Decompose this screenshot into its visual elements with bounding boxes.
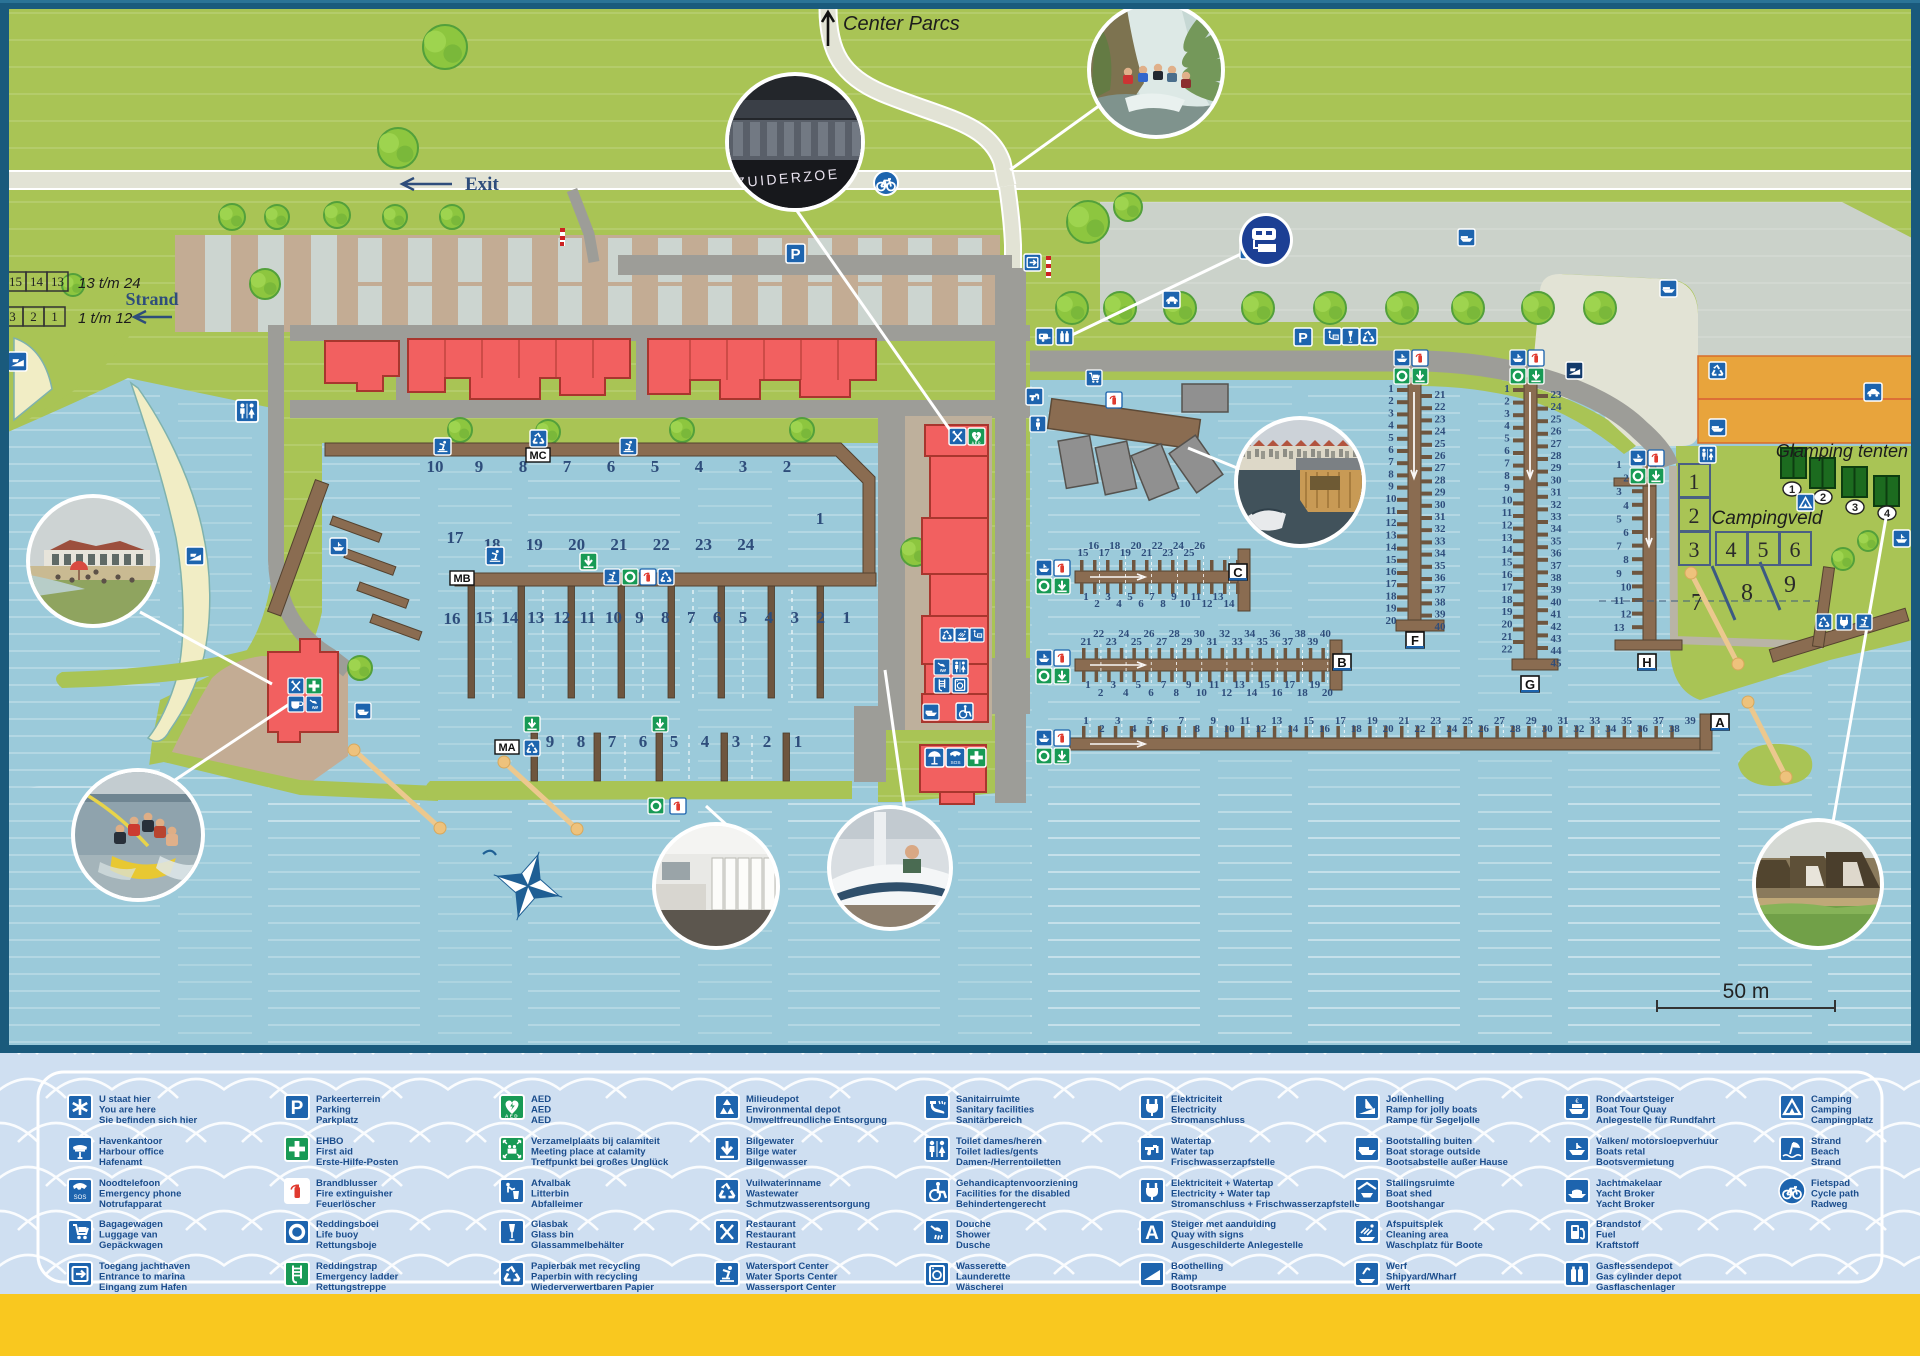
svg-text:27: 27 [1494,715,1506,727]
svg-text:Exit: Exit [465,174,499,195]
svg-text:1: 1 [1689,469,1700,494]
svg-text:26: 26 [1435,450,1447,462]
svg-text:Abfalleimer: Abfalleimer [531,1199,583,1210]
svg-text:Kraftstoff: Kraftstoff [1596,1240,1640,1251]
svg-text:9: 9 [1186,679,1192,691]
svg-text:22: 22 [1093,628,1105,640]
svg-text:11: 11 [1240,715,1250,727]
svg-text:B: B [1337,655,1346,670]
svg-text:9: 9 [546,732,555,751]
svg-text:U staat hier: U staat hier [99,1094,151,1105]
svg-text:Gepäckwagen: Gepäckwagen [99,1240,163,1251]
svg-text:32: 32 [1435,523,1447,535]
svg-text:9: 9 [1784,572,1796,598]
svg-text:15: 15 [476,608,493,627]
svg-text:17: 17 [1386,578,1398,590]
svg-text:Facilities for the disabled: Facilities for the disabled [956,1189,1070,1200]
svg-text:Bilgenwasser: Bilgenwasser [746,1157,808,1168]
svg-text:36: 36 [1435,572,1447,584]
svg-text:1: 1 [1504,383,1510,395]
svg-text:Wäscherei: Wäscherei [956,1282,1004,1293]
svg-text:26: 26 [1194,540,1206,552]
svg-text:40: 40 [1435,621,1447,633]
svg-text:20: 20 [568,535,585,554]
svg-text:Environmental depot: Environmental depot [746,1105,841,1116]
svg-text:14: 14 [1502,544,1514,556]
svg-text:MC: MC [529,450,546,462]
svg-text:2: 2 [30,309,37,324]
svg-text:Treffpunkt bei großes Unglück: Treffpunkt bei großes Unglück [531,1157,669,1168]
svg-text:21: 21 [1081,636,1092,648]
svg-text:Center Parcs: Center Parcs [843,13,960,35]
svg-text:Erste-Hilfe-Posten: Erste-Hilfe-Posten [316,1157,399,1168]
svg-text:34: 34 [1605,723,1617,735]
svg-text:AED: AED [531,1105,551,1116]
svg-text:Toilet ladies/gents: Toilet ladies/gents [956,1147,1038,1158]
svg-text:Notrufapparat: Notrufapparat [99,1199,163,1210]
svg-text:19: 19 [526,535,543,554]
svg-text:41: 41 [1551,609,1562,621]
svg-text:10: 10 [1621,581,1633,593]
svg-text:Emergency phone: Emergency phone [99,1189,181,1200]
svg-text:3: 3 [791,608,800,627]
svg-text:4: 4 [1123,687,1129,699]
svg-text:Jachtmakelaar: Jachtmakelaar [1596,1178,1662,1189]
svg-text:9: 9 [1388,481,1394,493]
svg-text:Cycle path: Cycle path [1811,1189,1859,1200]
svg-text:15: 15 [9,274,22,289]
svg-text:1: 1 [1085,679,1091,691]
svg-text:25: 25 [1551,413,1563,425]
svg-text:Restaurant: Restaurant [746,1219,796,1230]
svg-text:2: 2 [816,608,825,627]
svg-text:Glassammelbehälter: Glassammelbehälter [531,1240,624,1251]
svg-text:21: 21 [1141,547,1152,559]
svg-text:Rampe für Segeljolle: Rampe für Segeljolle [1386,1115,1480,1126]
svg-text:2: 2 [1098,687,1104,699]
svg-text:1: 1 [1083,715,1089,727]
svg-text:Papierbak met recycling: Papierbak met recycling [531,1261,640,1272]
svg-text:19: 19 [1502,606,1514,618]
svg-text:Toilet dames/heren: Toilet dames/heren [956,1136,1042,1147]
svg-text:6: 6 [1388,444,1394,456]
svg-text:4: 4 [695,457,704,476]
svg-text:Douche: Douche [956,1219,991,1230]
svg-text:Quay with signs: Quay with signs [1171,1230,1244,1241]
svg-text:Entrance to marina: Entrance to marina [99,1272,186,1283]
svg-text:29: 29 [1181,636,1193,648]
svg-text:Steiger met aanduiding: Steiger met aanduiding [1171,1219,1276,1230]
svg-text:Reddingsboei: Reddingsboei [316,1219,379,1230]
svg-text:16: 16 [1386,566,1398,578]
svg-text:Umweltfreundliche Entsorgung: Umweltfreundliche Entsorgung [746,1115,887,1126]
svg-text:36: 36 [1270,628,1282,640]
svg-text:14: 14 [1287,723,1299,735]
svg-text:17: 17 [1284,679,1296,691]
svg-text:Ramp for jolly boats: Ramp for jolly boats [1386,1105,1477,1116]
svg-text:Fuel: Fuel [1596,1230,1616,1241]
svg-text:4: 4 [1504,420,1510,432]
svg-text:25: 25 [1131,636,1143,648]
svg-text:Bootshangar: Bootshangar [1386,1199,1445,1210]
svg-text:2: 2 [763,732,772,751]
svg-text:12: 12 [1255,723,1267,735]
svg-text:14: 14 [501,608,519,627]
svg-text:Frischwasserzapfstelle: Frischwasserzapfstelle [1171,1157,1275,1168]
svg-text:10: 10 [1180,598,1192,610]
svg-text:26: 26 [1478,723,1490,735]
svg-text:13: 13 [1502,532,1514,544]
svg-text:5: 5 [1616,513,1622,525]
svg-text:18: 18 [1297,687,1309,699]
svg-text:32: 32 [1551,499,1563,511]
svg-text:27: 27 [1156,636,1168,648]
svg-text:Afvalbak: Afvalbak [531,1178,571,1189]
svg-text:11: 11 [1209,679,1219,691]
svg-text:37: 37 [1282,636,1294,648]
svg-text:31: 31 [1435,511,1446,523]
svg-text:8: 8 [661,608,670,627]
svg-text:40: 40 [1551,596,1563,608]
svg-text:Waschplatz für Boote: Waschplatz für Boote [1386,1240,1483,1251]
svg-text:First aid: First aid [316,1147,353,1158]
svg-text:Brandstof: Brandstof [1596,1219,1642,1230]
svg-text:7: 7 [1179,715,1185,727]
svg-text:17: 17 [1335,715,1347,727]
svg-text:12: 12 [1386,517,1398,529]
svg-text:Watertap: Watertap [1171,1136,1211,1147]
svg-text:4: 4 [1623,500,1629,512]
svg-text:Dusche: Dusche [956,1240,990,1251]
svg-text:Bilgewater: Bilgewater [746,1136,794,1147]
svg-text:33: 33 [1551,511,1563,523]
svg-text:MA: MA [498,742,515,754]
svg-text:7: 7 [1616,541,1622,553]
svg-text:3: 3 [1616,486,1622,498]
svg-text:8: 8 [1741,580,1753,606]
svg-text:38: 38 [1435,596,1447,608]
svg-text:19: 19 [1309,679,1321,691]
svg-text:Toegang jachthaven: Toegang jachthaven [99,1261,190,1272]
svg-text:Litterbin: Litterbin [531,1189,569,1200]
svg-text:Bagagewagen: Bagagewagen [99,1219,163,1230]
svg-text:13: 13 [1614,622,1626,634]
svg-text:Rettungstreppe: Rettungstreppe [316,1282,386,1293]
svg-text:Werft: Werft [1386,1282,1411,1293]
svg-text:45: 45 [1551,657,1563,669]
svg-text:6: 6 [1790,537,1801,562]
svg-text:3: 3 [1105,591,1111,603]
svg-text:9: 9 [475,457,484,476]
svg-text:Glass bin: Glass bin [531,1230,574,1241]
svg-text:17: 17 [1502,581,1514,593]
svg-text:33: 33 [1232,636,1244,648]
svg-text:17: 17 [447,528,465,547]
svg-text:Sanitary facilities: Sanitary facilities [956,1105,1034,1116]
svg-text:12: 12 [1221,687,1233,699]
svg-text:Electricity + Water tap: Electricity + Water tap [1171,1189,1270,1200]
svg-text:Fietspad: Fietspad [1811,1178,1850,1189]
svg-text:15: 15 [1303,715,1315,727]
svg-text:Boothelling: Boothelling [1171,1261,1223,1272]
svg-text:7: 7 [1504,457,1510,469]
svg-text:31: 31 [1207,636,1218,648]
svg-text:1: 1 [1789,484,1795,496]
svg-text:Parkplatz: Parkplatz [316,1115,358,1126]
svg-text:5: 5 [739,608,748,627]
svg-text:18: 18 [1351,723,1363,735]
svg-text:4: 4 [765,608,774,627]
svg-text:Shipyard/Wharf: Shipyard/Wharf [1386,1272,1457,1283]
svg-text:23: 23 [1435,413,1447,425]
svg-text:1: 1 [794,732,803,751]
svg-text:Valken/ motorsloepverhuur: Valken/ motorsloepverhuur [1596,1136,1719,1147]
svg-text:Boat Tour Quay: Boat Tour Quay [1596,1105,1667,1116]
svg-text:8: 8 [1173,687,1179,699]
svg-text:Schmutzwasserentsorgung: Schmutzwasserentsorgung [746,1199,870,1210]
svg-text:Wassersport Center: Wassersport Center [746,1282,836,1293]
svg-text:27: 27 [1551,438,1563,450]
svg-text:25: 25 [1435,438,1447,450]
svg-text:30: 30 [1542,723,1554,735]
svg-text:24: 24 [1118,628,1130,640]
svg-text:Restaurant: Restaurant [746,1240,796,1251]
svg-text:Boats retal: Boats retal [1596,1147,1645,1158]
svg-text:6: 6 [713,608,722,627]
svg-text:1: 1 [816,509,825,528]
svg-text:12: 12 [1621,609,1633,621]
svg-text:2: 2 [1388,395,1394,407]
svg-text:24: 24 [1551,401,1563,413]
svg-text:36: 36 [1637,723,1649,735]
svg-text:32: 32 [1219,628,1231,640]
svg-text:23: 23 [695,535,712,554]
svg-text:Vuilwaterinname: Vuilwaterinname [746,1178,821,1189]
svg-text:16: 16 [1272,687,1284,699]
svg-text:31: 31 [1558,715,1569,727]
svg-text:20: 20 [1383,723,1395,735]
svg-text:27: 27 [1435,462,1447,474]
svg-text:3: 3 [1110,679,1116,691]
svg-text:Anlegestelle für Rundfahrt: Anlegestelle für Rundfahrt [1596,1115,1716,1126]
svg-text:4: 4 [701,732,710,751]
svg-text:14: 14 [1224,598,1236,610]
svg-text:34: 34 [1435,548,1447,560]
svg-text:6: 6 [1623,527,1629,539]
svg-text:Shower: Shower [956,1230,991,1241]
svg-text:A: A [1715,715,1725,730]
svg-text:6: 6 [1138,598,1144,610]
svg-text:Bilge water: Bilge water [746,1147,797,1158]
svg-text:31: 31 [1551,487,1562,499]
svg-text:29: 29 [1526,715,1538,727]
svg-text:11: 11 [1191,591,1201,603]
svg-text:18: 18 [1386,590,1398,602]
svg-text:Bootsabstelle außer Hause: Bootsabstelle außer Hause [1386,1157,1508,1168]
svg-text:16: 16 [444,609,461,628]
svg-text:Rondvaartsteiger: Rondvaartsteiger [1596,1094,1674,1105]
svg-text:3: 3 [9,309,16,324]
svg-text:11: 11 [1386,505,1396,517]
svg-text:Parkeerterrein: Parkeerterrein [316,1094,381,1105]
svg-text:28: 28 [1169,628,1181,640]
svg-text:43: 43 [1551,633,1563,645]
svg-text:8: 8 [1504,470,1510,482]
svg-text:33: 33 [1435,535,1447,547]
svg-text:AED: AED [531,1094,551,1105]
svg-text:13: 13 [1234,679,1246,691]
svg-text:Life buoy: Life buoy [316,1230,359,1241]
svg-text:37: 37 [1653,715,1665,727]
svg-text:1: 1 [1083,591,1089,603]
svg-text:Stromanschluss: Stromanschluss [1171,1115,1245,1126]
svg-text:4: 4 [1116,598,1122,610]
svg-text:29: 29 [1551,462,1563,474]
svg-text:3: 3 [732,732,741,751]
svg-text:13: 13 [527,608,544,627]
svg-text:15: 15 [1386,554,1398,566]
svg-text:22: 22 [653,535,670,554]
svg-text:30: 30 [1194,628,1206,640]
svg-text:Sanitairruimte: Sanitairruimte [956,1094,1020,1105]
svg-text:2: 2 [1623,473,1629,485]
svg-text:8: 8 [577,732,586,751]
svg-text:Noodtelefoon: Noodtelefoon [99,1178,160,1189]
svg-text:Campingplatz: Campingplatz [1811,1115,1874,1126]
svg-text:Stromanschluss + Frischwasser: Stromanschluss + Frischwasserzapfstelle [1171,1199,1360,1210]
svg-text:14: 14 [1386,542,1398,554]
svg-text:11: 11 [580,608,596,627]
svg-text:21: 21 [1435,389,1446,401]
svg-text:AED: AED [531,1115,551,1126]
svg-text:8: 8 [1195,723,1201,735]
svg-text:Werf: Werf [1386,1261,1408,1272]
svg-text:15: 15 [1259,679,1271,691]
svg-text:Ramp: Ramp [1171,1272,1198,1283]
svg-text:Radweg: Radweg [1811,1199,1848,1210]
svg-text:8: 8 [1160,598,1166,610]
svg-text:Afspuitsplek: Afspuitsplek [1386,1219,1444,1230]
svg-text:2: 2 [1504,395,1510,407]
svg-text:39: 39 [1307,636,1319,648]
svg-text:Elektriciteit + Watertap: Elektriciteit + Watertap [1171,1178,1274,1189]
svg-text:12: 12 [1502,519,1514,531]
svg-text:1: 1 [842,608,851,627]
svg-text:Boat storage outside: Boat storage outside [1386,1147,1481,1158]
svg-text:MB: MB [453,573,470,585]
svg-text:2: 2 [783,457,792,476]
svg-text:Rettungsboje: Rettungsboje [316,1240,377,1251]
svg-text:Strand: Strand [125,289,178,309]
svg-text:5: 5 [651,457,660,476]
svg-text:4: 4 [1131,723,1137,735]
svg-text:Camping: Camping [1811,1105,1852,1116]
svg-text:Sie befinden sich hier: Sie befinden sich hier [99,1115,197,1126]
svg-text:6: 6 [1148,687,1154,699]
svg-text:26: 26 [1144,628,1156,640]
svg-text:3: 3 [1504,408,1510,420]
svg-text:22: 22 [1414,723,1426,735]
svg-text:6: 6 [607,457,616,476]
svg-text:Reddingstrap: Reddingstrap [316,1261,377,1272]
svg-text:7: 7 [608,732,617,751]
svg-text:11: 11 [1614,595,1624,607]
svg-text:8: 8 [1623,554,1629,566]
svg-text:3: 3 [739,457,748,476]
svg-text:4: 4 [1388,420,1394,432]
svg-text:24: 24 [1435,426,1447,438]
svg-text:2: 2 [1094,598,1100,610]
svg-text:Parking: Parking [316,1105,351,1116]
svg-text:30: 30 [1551,474,1563,486]
svg-text:Emergency ladder: Emergency ladder [316,1272,399,1283]
svg-text:Electricity: Electricity [1171,1105,1217,1116]
svg-text:3: 3 [1388,407,1394,419]
svg-text:12: 12 [553,608,570,627]
svg-text:23: 23 [1430,715,1442,727]
svg-text:Meeting place at calamity: Meeting place at calamity [531,1147,646,1158]
svg-text:Water Sports Center: Water Sports Center [746,1272,838,1283]
svg-text:3: 3 [1115,715,1121,727]
svg-text:Behindertengerecht: Behindertengerecht [956,1199,1047,1210]
svg-text:Jollenhelling: Jollenhelling [1386,1094,1444,1105]
svg-text:Beach: Beach [1811,1147,1840,1158]
svg-text:29: 29 [1435,487,1447,499]
svg-text:Bootstalling buiten: Bootstalling buiten [1386,1136,1472,1147]
svg-text:10: 10 [1224,723,1236,735]
svg-text:Paperbin with recycling: Paperbin with recycling [531,1272,638,1283]
svg-text:10: 10 [1386,493,1398,505]
svg-text:1: 1 [1616,459,1622,471]
svg-text:Bootsvermietung: Bootsvermietung [1596,1157,1674,1168]
svg-text:Havenkantoor: Havenkantoor [99,1136,163,1147]
svg-text:Harbour office: Harbour office [99,1147,164,1158]
svg-text:G: G [1525,677,1535,692]
svg-text:Glasbak: Glasbak [531,1219,569,1230]
svg-text:Hafenamt: Hafenamt [99,1157,143,1168]
svg-text:13: 13 [51,274,64,289]
svg-text:You are here: You are here [99,1105,156,1116]
svg-text:C: C [1233,565,1243,580]
svg-text:11: 11 [1502,507,1512,519]
svg-text:7: 7 [1149,591,1155,603]
svg-text:34: 34 [1244,628,1256,640]
svg-text:37: 37 [1551,560,1563,572]
svg-text:Stallingsruimte: Stallingsruimte [1386,1178,1455,1189]
svg-text:H: H [1642,655,1651,670]
svg-text:21: 21 [1399,715,1410,727]
svg-text:9: 9 [1616,568,1622,580]
svg-text:Ausgeschilderte Anlegestelle: Ausgeschilderte Anlegestelle [1171,1240,1303,1251]
svg-text:39: 39 [1685,715,1697,727]
svg-text:39: 39 [1551,584,1563,596]
svg-text:20: 20 [1322,687,1334,699]
svg-text:1: 1 [1388,383,1394,395]
svg-text:9: 9 [635,608,644,627]
svg-text:5: 5 [1136,679,1142,691]
svg-text:19: 19 [1386,603,1398,615]
svg-text:Wastewater: Wastewater [746,1189,799,1200]
svg-text:35: 35 [1621,715,1633,727]
svg-text:35: 35 [1435,560,1447,572]
svg-text:38: 38 [1669,723,1681,735]
svg-text:37: 37 [1435,584,1447,596]
svg-text:25: 25 [1462,715,1474,727]
svg-text:33: 33 [1589,715,1601,727]
svg-text:13: 13 [1213,591,1225,603]
svg-text:32: 32 [1573,723,1585,735]
svg-text:7: 7 [1388,456,1394,468]
